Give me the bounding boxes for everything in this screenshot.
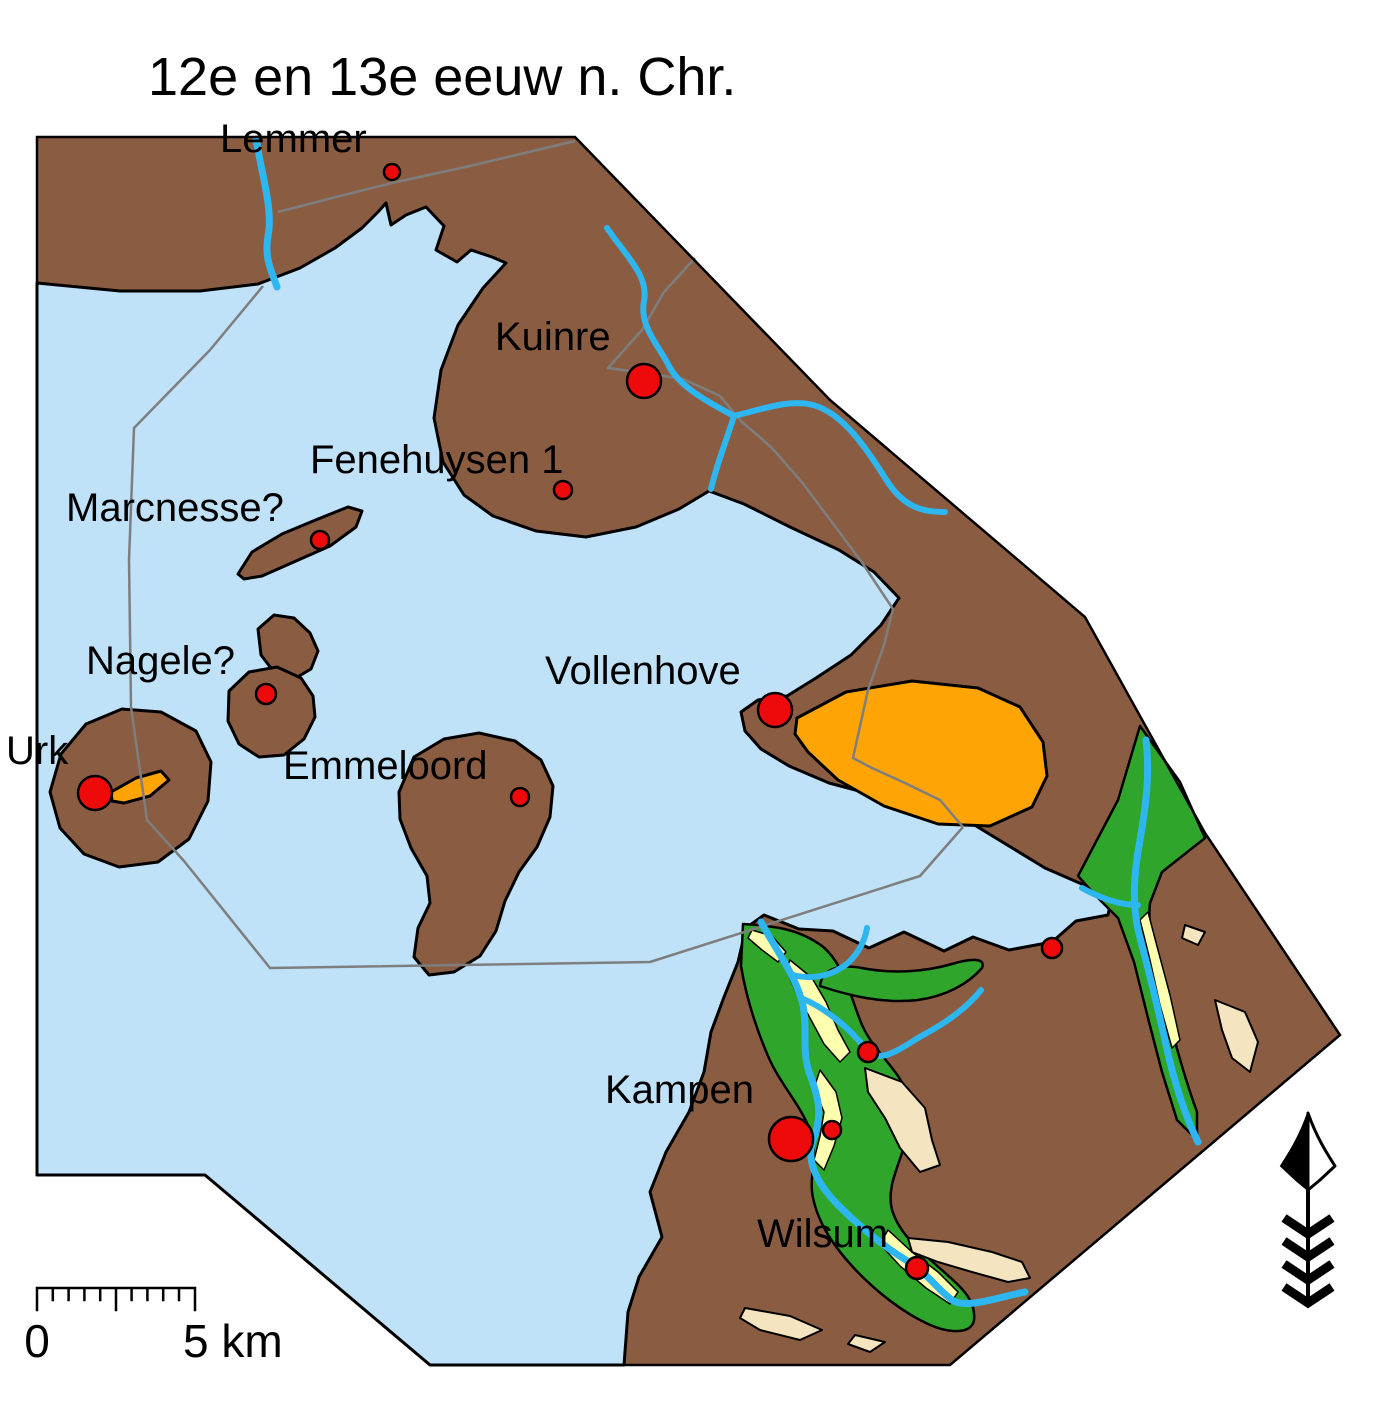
north-arrow-icon: [1281, 1113, 1335, 1303]
settlement-dot-nagele: [256, 684, 276, 704]
settlement-label-urk: Urk: [6, 729, 69, 773]
settlement-dot-urk: [78, 776, 112, 810]
settlement-dot-site-kampen-small: [823, 1121, 841, 1139]
settlement-label-emmeloord: Emmeloord: [283, 744, 488, 788]
historical-map-canvas: LemmerKuinreFenehuysen 1Marcnesse?Nagele…: [0, 0, 1384, 1417]
settlement-label-kuinre: Kuinre: [495, 315, 611, 359]
settlement-dot-kuinre: [627, 364, 661, 398]
scale-bar-line: [37, 1288, 195, 1310]
settlement-label-lemmer: Lemmer: [220, 117, 367, 161]
map-svg: LemmerKuinreFenehuysen 1Marcnesse?Nagele…: [0, 0, 1384, 1417]
settlement-dot-site-zwartewater: [1042, 938, 1062, 958]
settlement-label-fenehuysen-1: Fenehuysen 1: [310, 438, 564, 482]
settlement-label-nagele: Nagele?: [86, 639, 235, 683]
scale-bar: 0 5 km: [24, 1288, 282, 1367]
map-title: 12e en 13e eeuw n. Chr.: [148, 47, 736, 107]
settlement-dot-lemmer: [384, 164, 400, 180]
settlement-label-marcnesse: Marcnesse?: [66, 486, 284, 530]
north-arrow-head-left: [1281, 1113, 1308, 1190]
settlement-dot-vollenhove: [758, 693, 792, 727]
settlement-dot-kampen: [769, 1117, 813, 1161]
settlement-dot-fenehuysen-1: [554, 481, 572, 499]
settlement-dot-emmeloord: [511, 788, 529, 806]
settlement-label-vollenhove: Vollenhove: [545, 649, 741, 693]
settlement-label-wilsum: Wilsum: [757, 1212, 888, 1256]
settlement-dot-marcnesse: [311, 531, 329, 549]
settlement-dot-site-delta-east: [858, 1042, 878, 1062]
settlement-dot-wilsum: [906, 1257, 928, 1279]
settlement-label-kampen: Kampen: [605, 1068, 754, 1112]
north-arrow-head-right: [1308, 1113, 1335, 1190]
scale-label-five-km: 5 km: [183, 1315, 283, 1367]
scale-label-zero: 0: [24, 1315, 50, 1367]
